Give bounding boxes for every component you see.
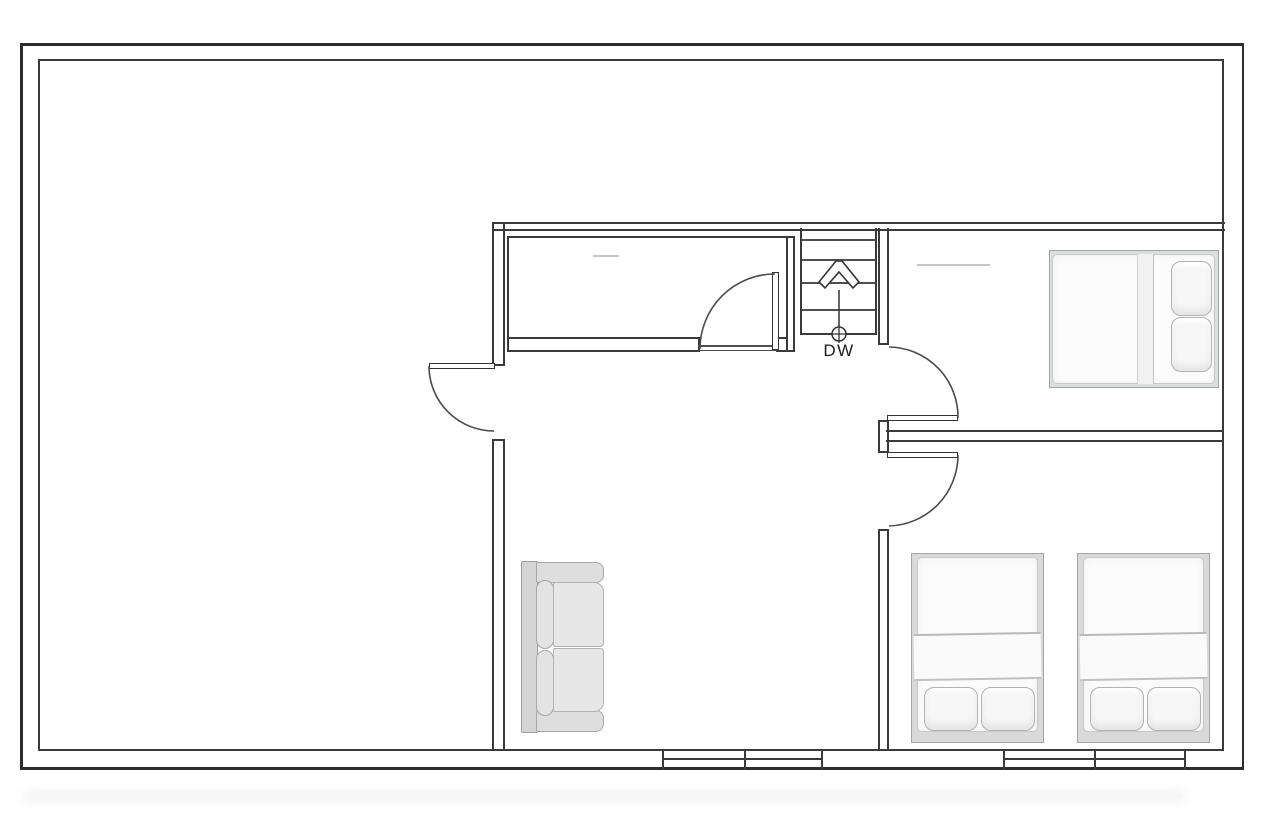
stair-tread [802,309,875,311]
faint-sketch-line [917,264,990,266]
stairs-up-arrow-icon [819,261,859,288]
wall-inner-left [38,59,40,751]
wall-central-right-a3 [878,531,880,751]
wall-central-left-b2 [503,441,505,751]
plan-annotation-layer [0,0,1264,816]
wall-topmiddle-bottom-b1 [507,350,700,352]
wall-central-left-a1 [492,222,494,366]
stair-tread [802,282,875,284]
wall-central-right-b1 [887,228,889,345]
door-jamb [878,343,889,345]
window-glass-line [662,758,822,760]
wall-outer-right [1242,43,1245,770]
door-arc-central-room [429,366,494,431]
door-leaf-bedroom-bottom [887,452,958,458]
page-shadow [25,793,1185,800]
door-leaf-topmiddle-room [772,272,779,350]
wall-topmiddle-top [507,236,795,238]
bed-pillow [924,687,978,731]
door-arc-bedroom-bottom [889,455,958,526]
wall-bedroom-divider-b [886,440,1224,442]
faint-sketch-line [593,255,619,257]
wall-central-left-a2 [492,441,494,751]
wall-central-left-b1 [503,222,505,366]
bed-pillow [1171,317,1212,372]
wall-central-right-a2 [878,420,880,453]
wall-inner-top [38,59,1224,61]
wall-stair-right [875,228,877,335]
wall-section-top-a [492,222,1225,224]
wall-central-right-a1 [878,228,880,345]
wall-inner-bottom [38,749,1224,751]
door-arc-bedroom-top [889,347,958,418]
stair-tread [802,259,875,261]
sofa-back-cushion [536,580,554,649]
bed-pillow [1147,687,1201,731]
bed-blanket-fold [1080,632,1208,681]
wall-topmiddle-left [507,236,509,352]
wall-topmiddle-bottom-a1 [507,337,700,339]
bed-duvet-fold [1137,254,1154,384]
bed-pillow [1090,687,1144,731]
wall-section-top-b [492,229,1225,231]
wall-bedroom-divider-a [886,430,1224,432]
dw-label: DW [813,341,865,361]
door-leaf-central-room [429,363,495,369]
wall-central-right-b3 [887,531,889,751]
sofa-seat-cushion [553,582,604,647]
door-threshold [698,350,778,352]
sofa-back-cushion [536,650,554,716]
window-glass-line [1003,758,1186,760]
wall-inner-right [1222,59,1224,751]
door-threshold [698,345,778,347]
wall-topmiddle-right-a [786,236,788,352]
stair-bottom-edge [800,333,877,335]
wall-topmiddle-right-b [793,236,795,352]
door-leaf-bedroom-top [887,415,958,421]
wall-topmiddle-bottom-b2 [776,350,795,352]
door-jamb [878,529,889,531]
door-arc-topmiddle-room [700,274,775,349]
wall-central-right-b2 [887,420,889,453]
bed-pillow [1171,261,1212,316]
bed-pillow [981,687,1035,731]
floor-plan: DW [0,0,1264,816]
wall-outer-left [20,43,23,770]
door-jamb [492,439,505,441]
sofa-seat-cushion [553,648,604,712]
wall-outer-top [20,43,1244,46]
bed-blanket-fold [914,632,1042,681]
wall-outer-bottom [20,767,1244,770]
stair-tread [802,239,875,241]
